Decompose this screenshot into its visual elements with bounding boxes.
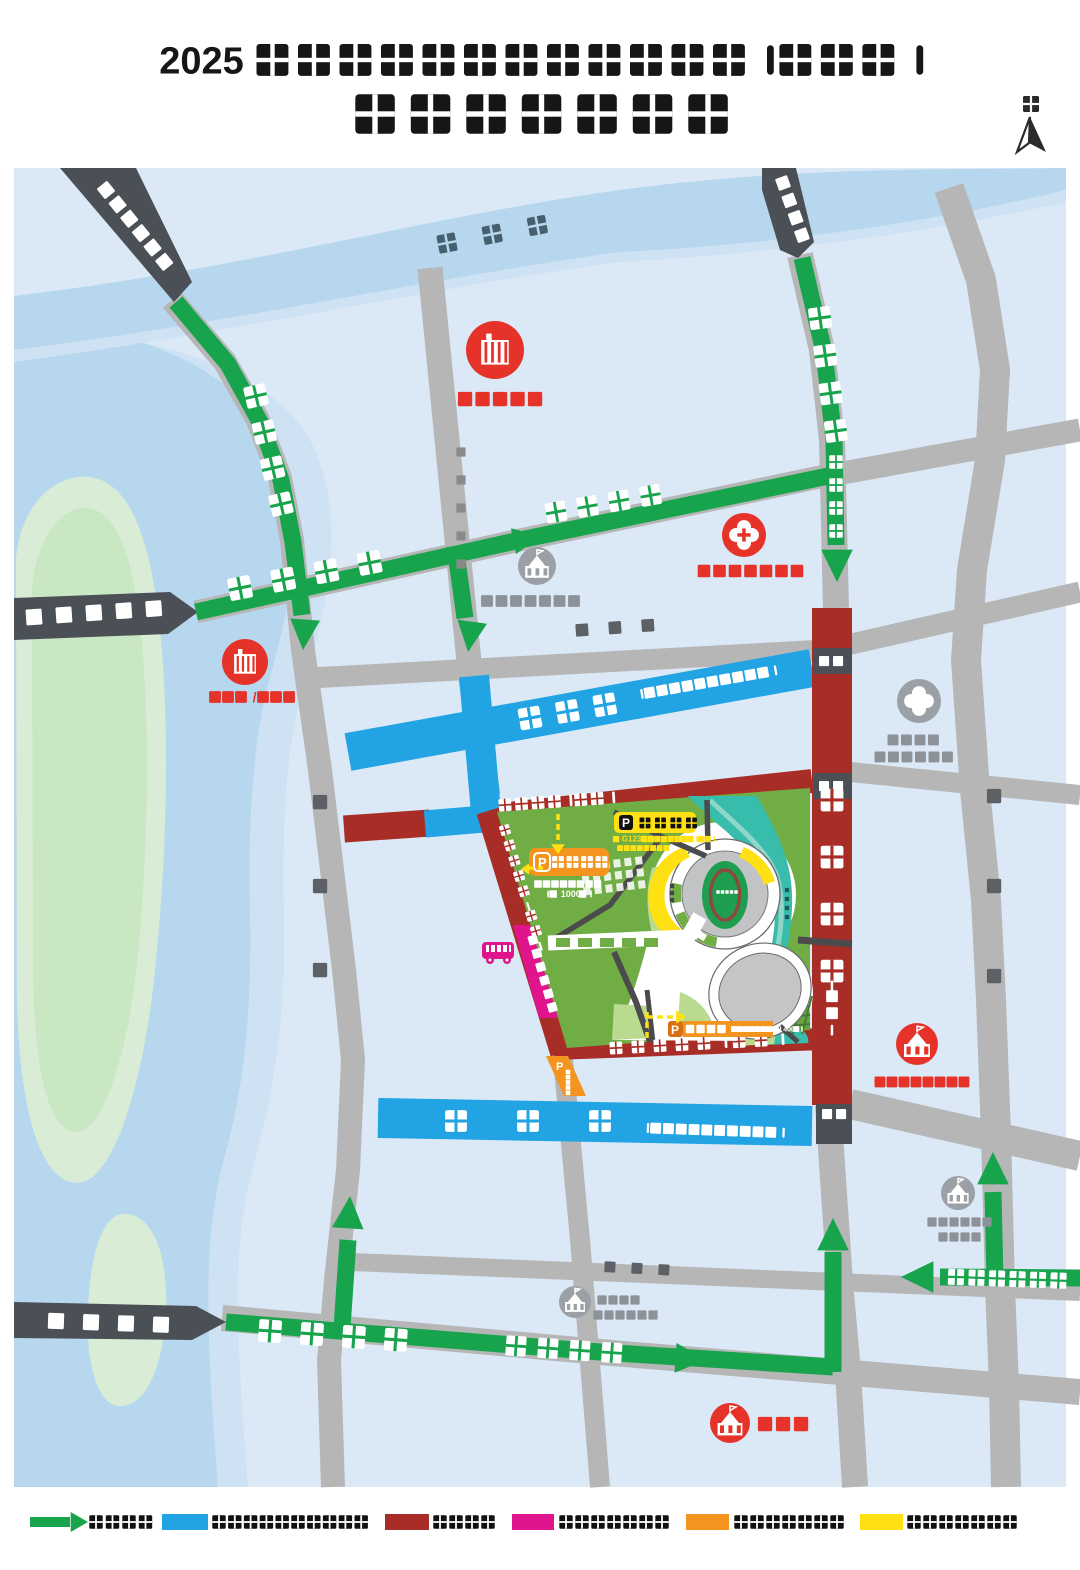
svg-text:P: P xyxy=(556,1061,563,1073)
svg-text:P: P xyxy=(671,1023,679,1037)
svg-text:1000: 1000 xyxy=(561,889,581,899)
svg-text:P: P xyxy=(622,816,630,830)
svg-text:2025: 2025 xyxy=(159,41,244,83)
svg-text:400: 400 xyxy=(783,1027,795,1034)
svg-text:/: / xyxy=(253,689,257,705)
